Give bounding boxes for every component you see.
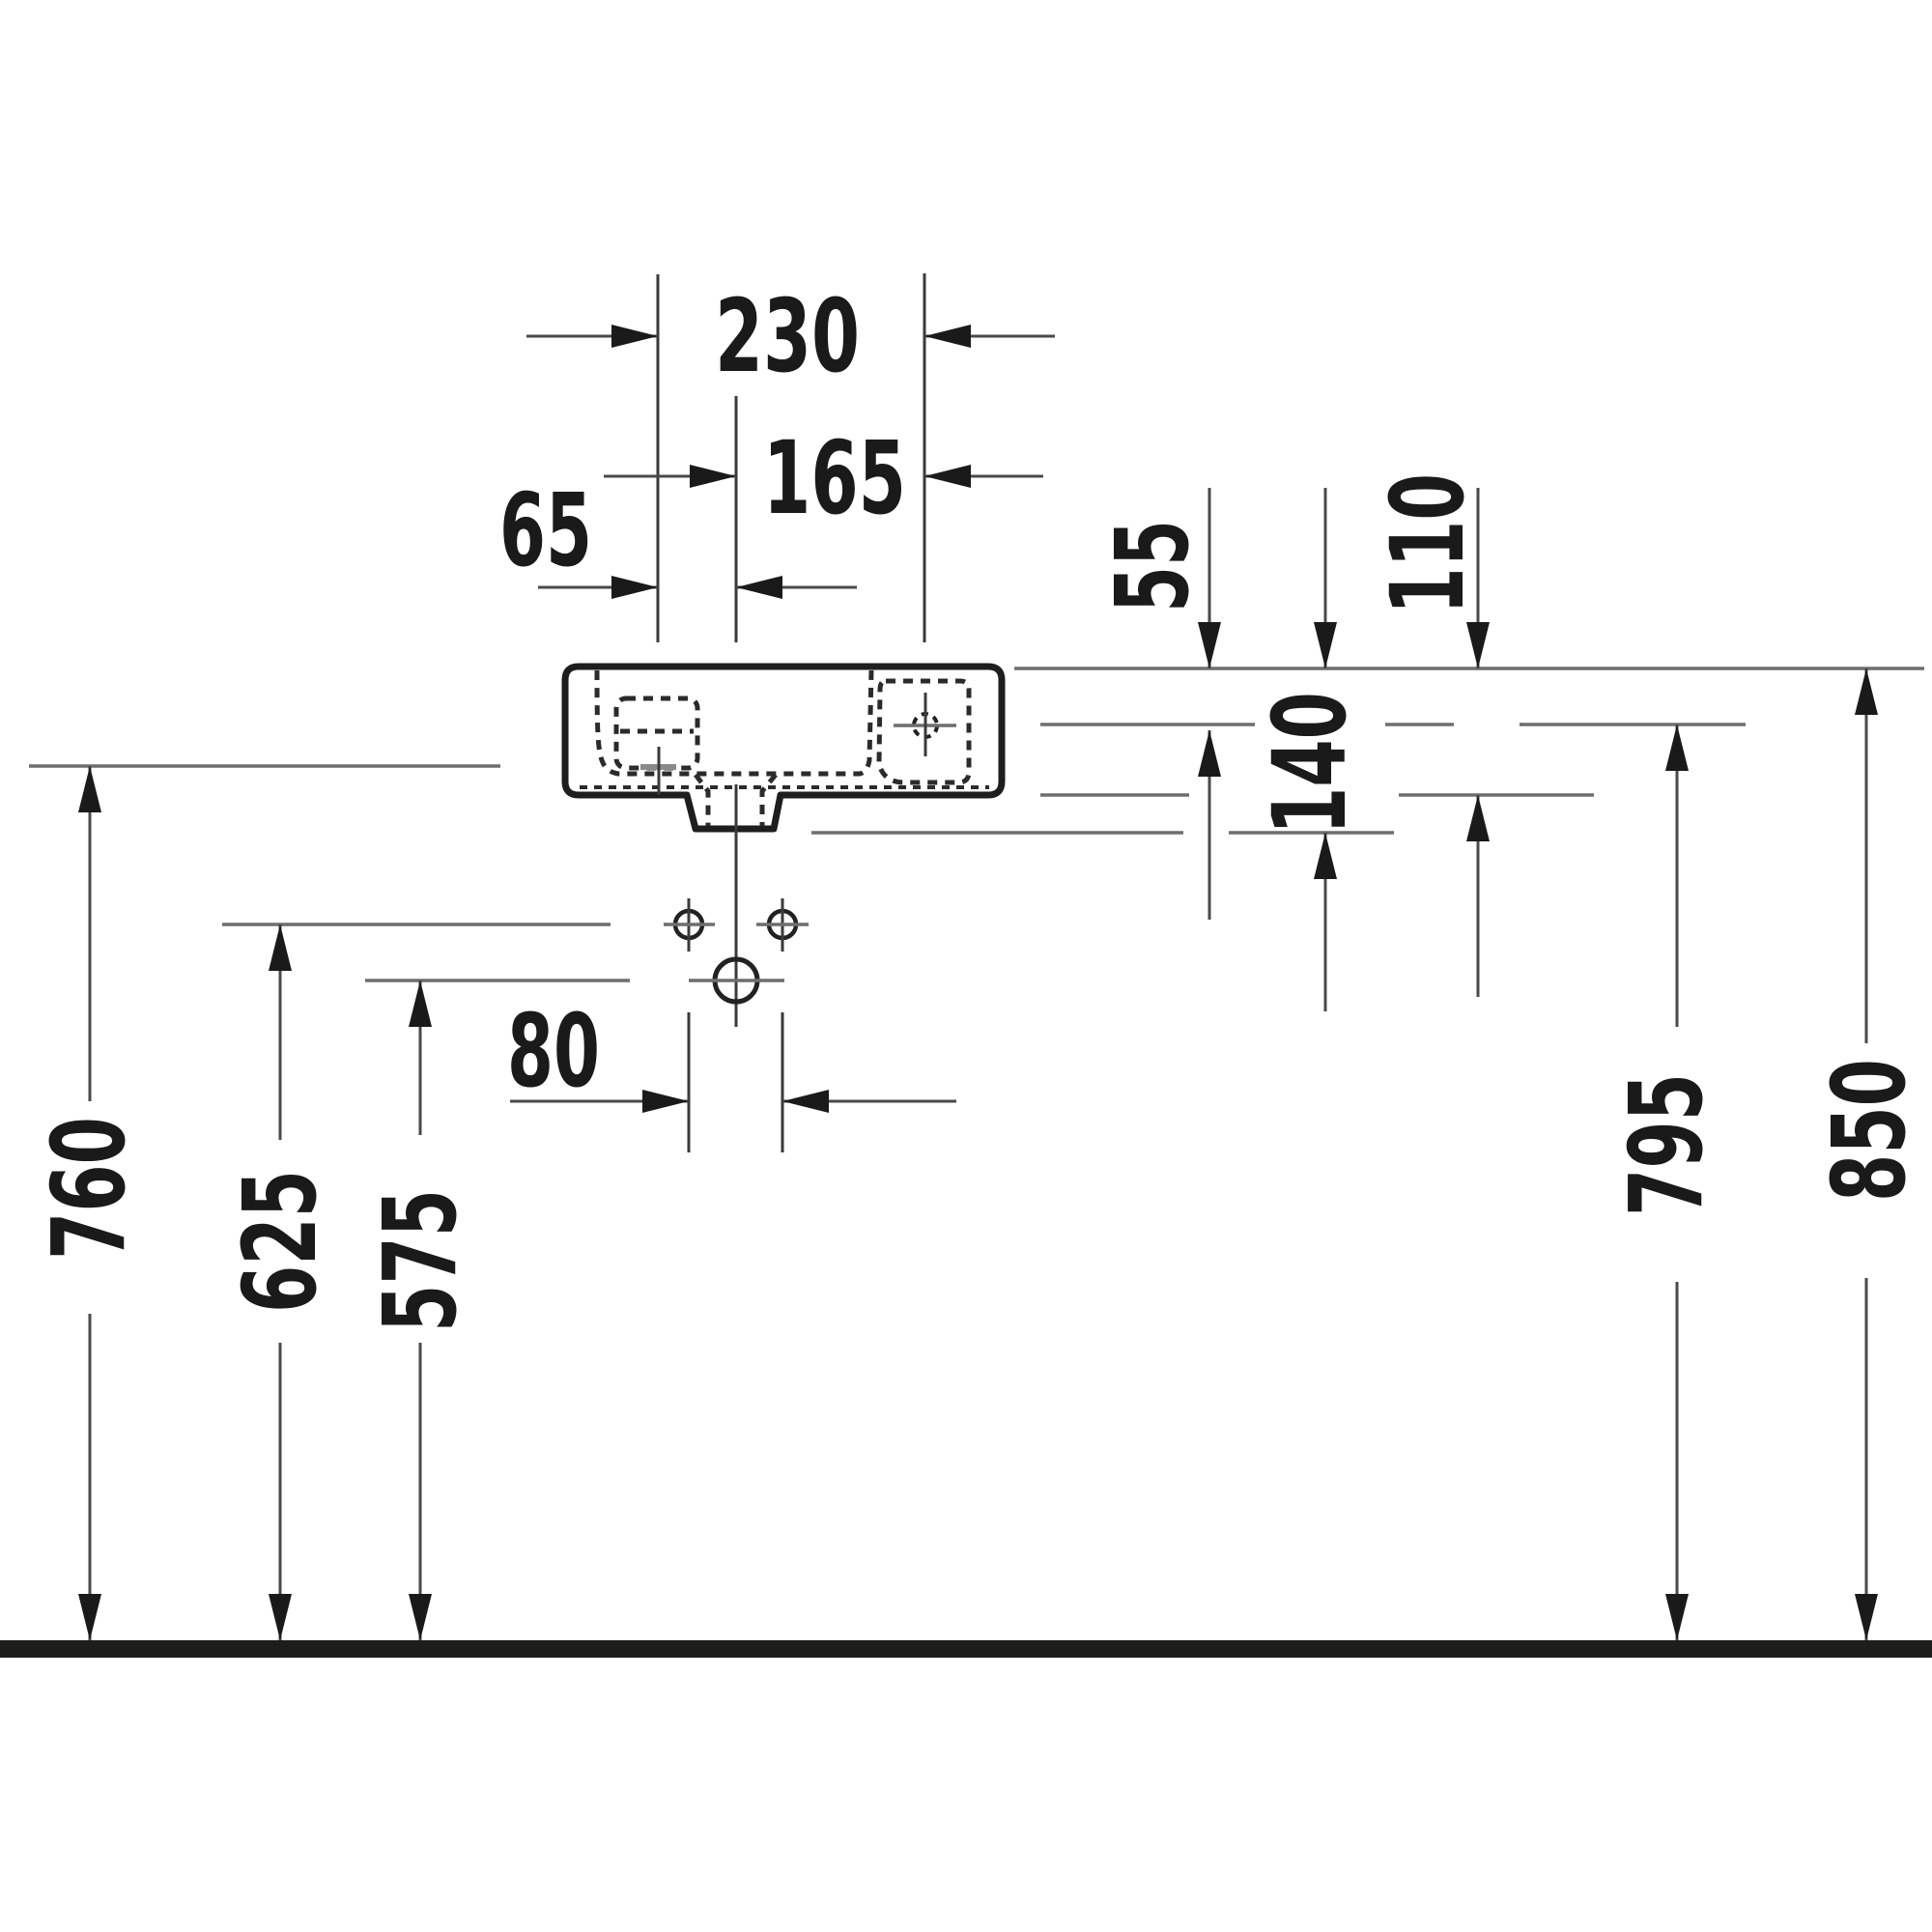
dim-label-760: 760: [30, 1117, 148, 1260]
floor-line: [0, 1640, 1932, 1658]
technical-drawing-canvas: 230 165 65 80 55 110 140 760 625 575 795…: [0, 0, 1932, 1932]
technical-drawing-page: 230 165 65 80 55 110 140 760 625 575 795…: [0, 0, 1932, 1932]
dim-label-65: 65: [499, 471, 592, 589]
dim-label-80: 80: [507, 992, 600, 1110]
dim-label-165: 165: [763, 419, 906, 537]
dim-label-850: 850: [1810, 1059, 1928, 1202]
dim-label-110: 110: [1369, 473, 1487, 614]
dim-label-230: 230: [715, 277, 860, 395]
dim-label-795: 795: [1607, 1073, 1725, 1216]
dim-label-140: 140: [1251, 692, 1369, 835]
dim-label-55: 55: [1094, 520, 1211, 612]
dim-label-625: 625: [221, 1170, 339, 1313]
dim-label-575: 575: [361, 1189, 479, 1332]
